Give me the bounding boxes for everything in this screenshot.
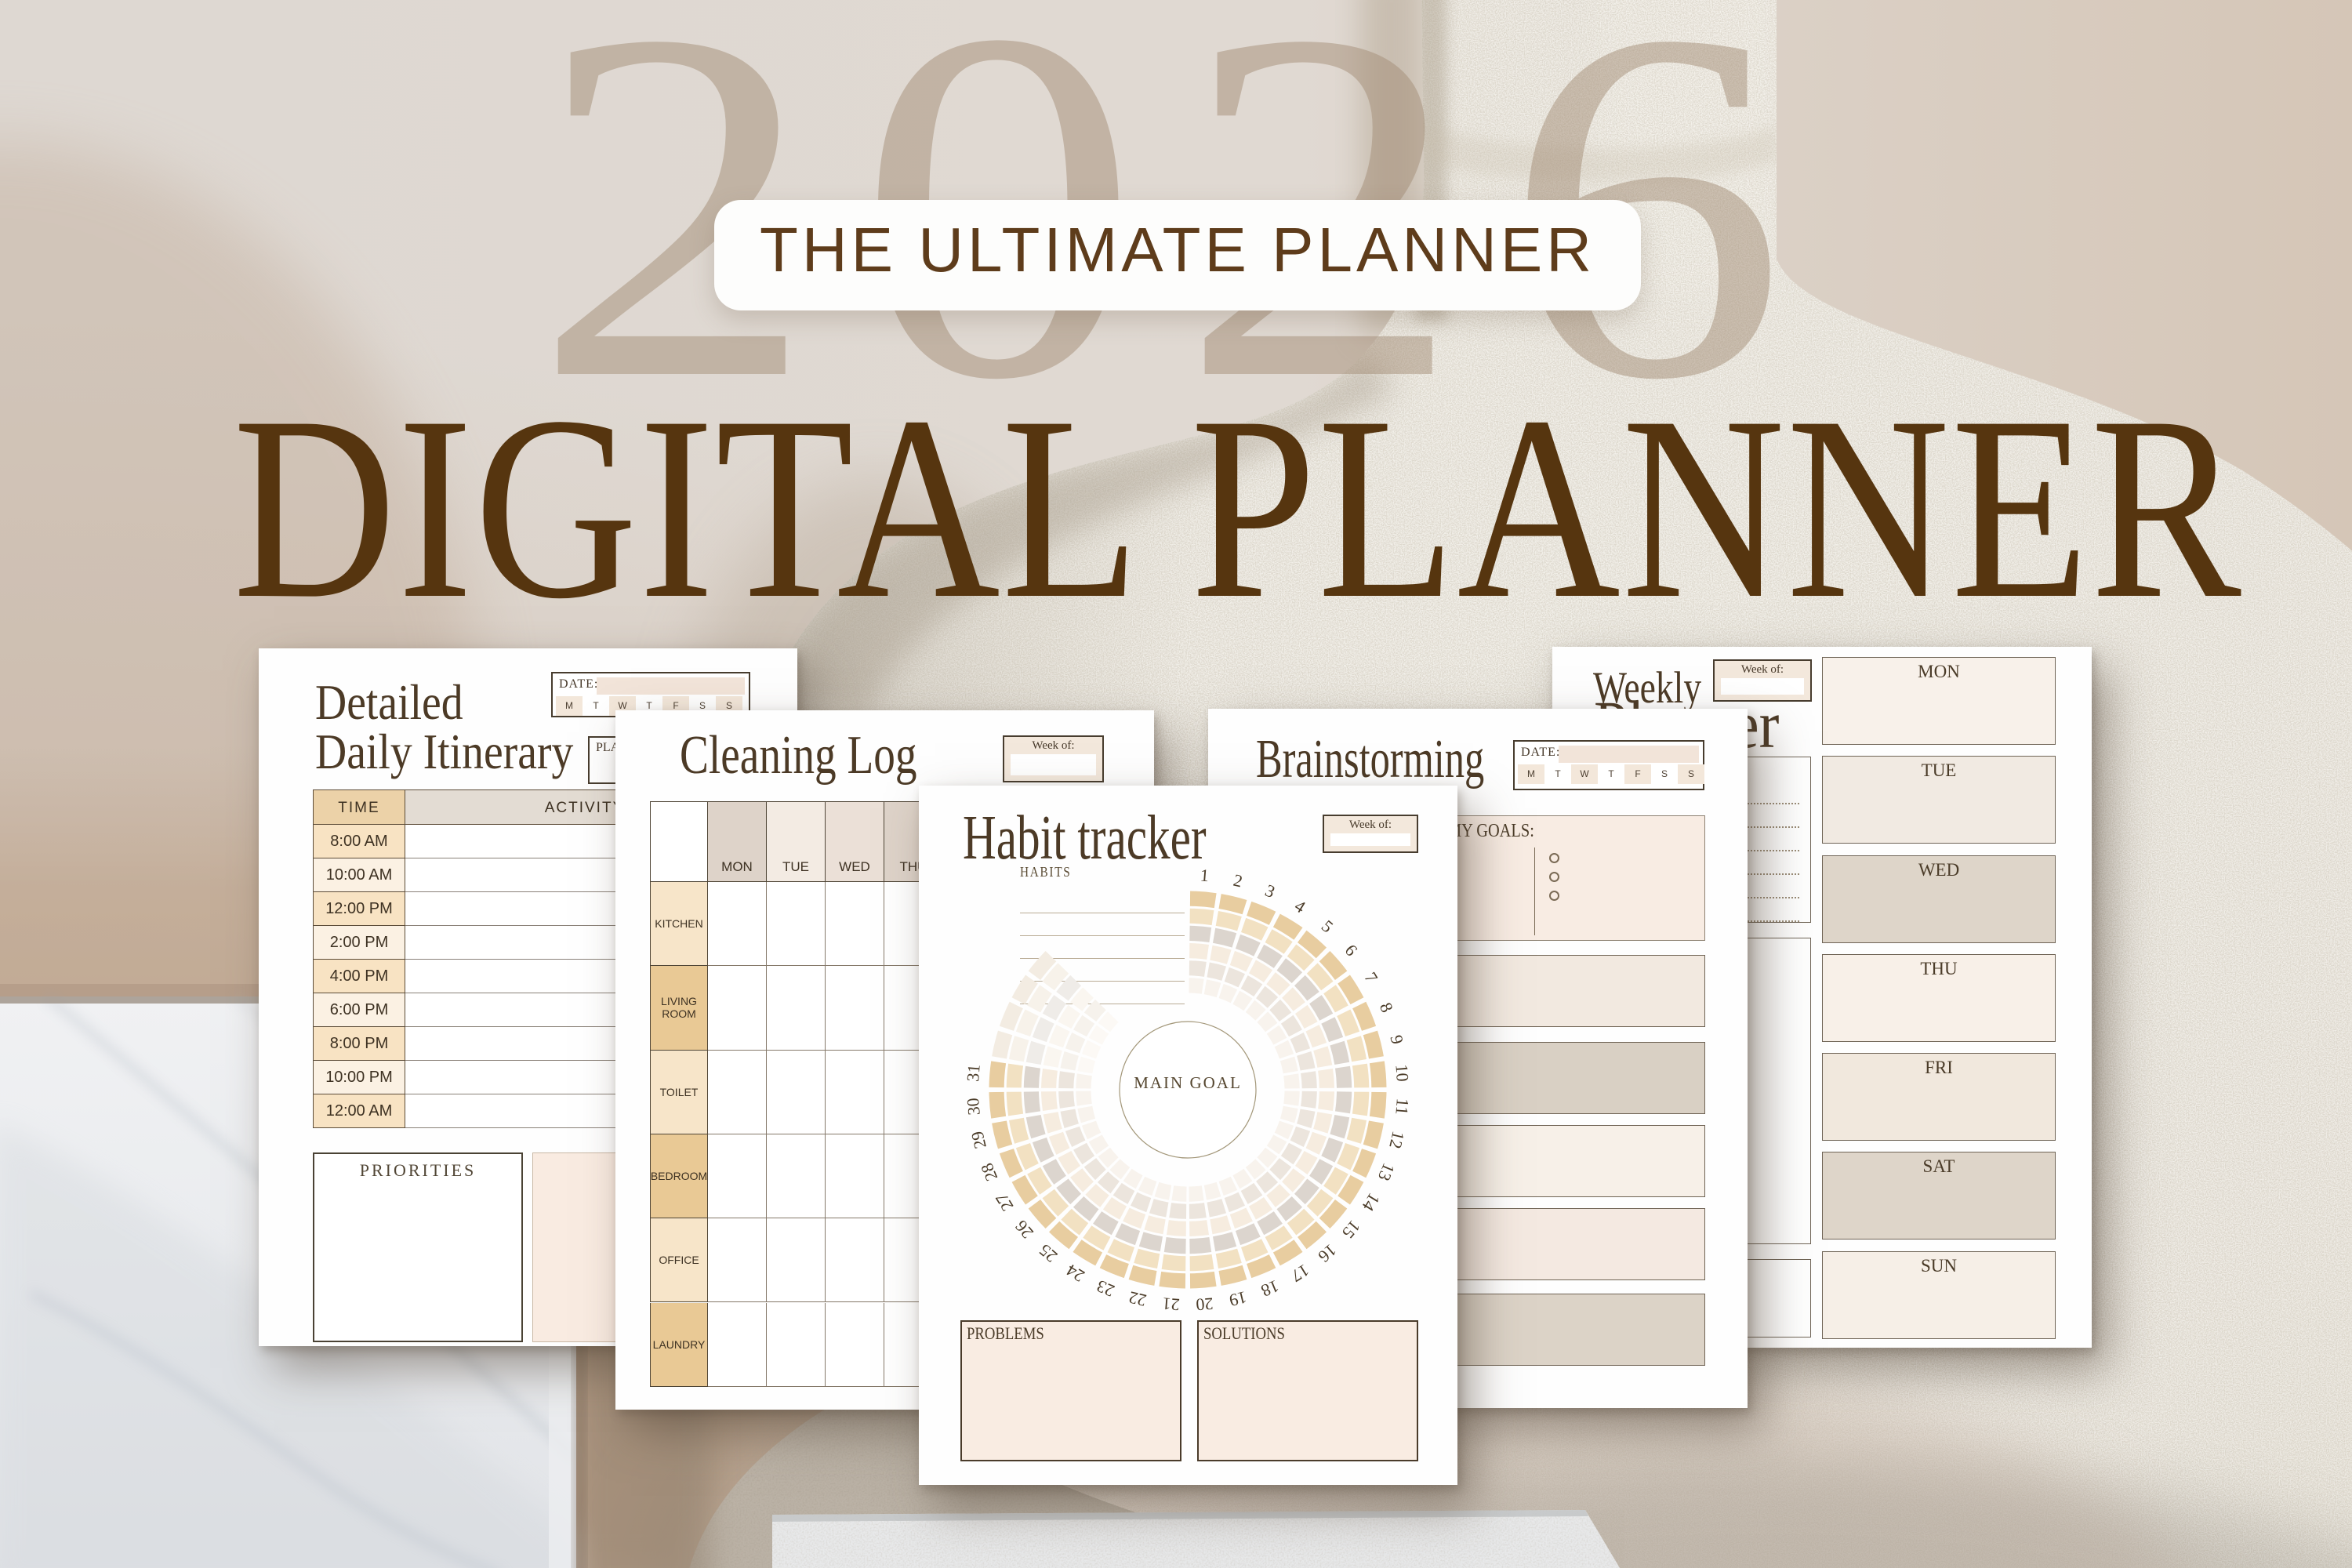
svg-text:2: 2 xyxy=(1232,870,1245,891)
svg-text:21: 21 xyxy=(1162,1294,1181,1315)
svg-text:15: 15 xyxy=(1338,1217,1364,1243)
svg-text:28: 28 xyxy=(977,1160,1002,1184)
svg-text:27: 27 xyxy=(992,1189,1018,1214)
svg-text:6: 6 xyxy=(1341,941,1362,960)
svg-text:16: 16 xyxy=(1315,1240,1341,1266)
svg-text:17: 17 xyxy=(1287,1261,1312,1287)
svg-text:11: 11 xyxy=(1392,1098,1413,1116)
svg-text:19: 19 xyxy=(1227,1287,1248,1310)
svg-text:MAIN GOAL: MAIN GOAL xyxy=(1134,1073,1242,1092)
svg-text:5: 5 xyxy=(1318,916,1338,936)
svg-text:8: 8 xyxy=(1376,1000,1397,1015)
svg-text:23: 23 xyxy=(1094,1276,1117,1301)
svg-text:30: 30 xyxy=(963,1098,984,1116)
svg-text:20: 20 xyxy=(1196,1294,1214,1315)
svg-text:1: 1 xyxy=(1200,865,1210,885)
svg-text:22: 22 xyxy=(1127,1287,1148,1310)
svg-text:14: 14 xyxy=(1359,1189,1385,1214)
svg-text:18: 18 xyxy=(1258,1276,1282,1301)
svg-text:10: 10 xyxy=(1392,1064,1413,1083)
svg-text:31: 31 xyxy=(963,1064,984,1083)
svg-text:13: 13 xyxy=(1374,1160,1399,1184)
svg-text:26: 26 xyxy=(1011,1217,1037,1243)
svg-text:9: 9 xyxy=(1386,1033,1407,1047)
svg-text:3: 3 xyxy=(1262,880,1278,902)
svg-text:25: 25 xyxy=(1035,1240,1061,1266)
svg-text:4: 4 xyxy=(1291,895,1308,916)
svg-text:29: 29 xyxy=(967,1129,989,1150)
svg-text:7: 7 xyxy=(1360,968,1381,985)
svg-text:12: 12 xyxy=(1385,1129,1408,1150)
svg-text:24: 24 xyxy=(1063,1261,1088,1287)
